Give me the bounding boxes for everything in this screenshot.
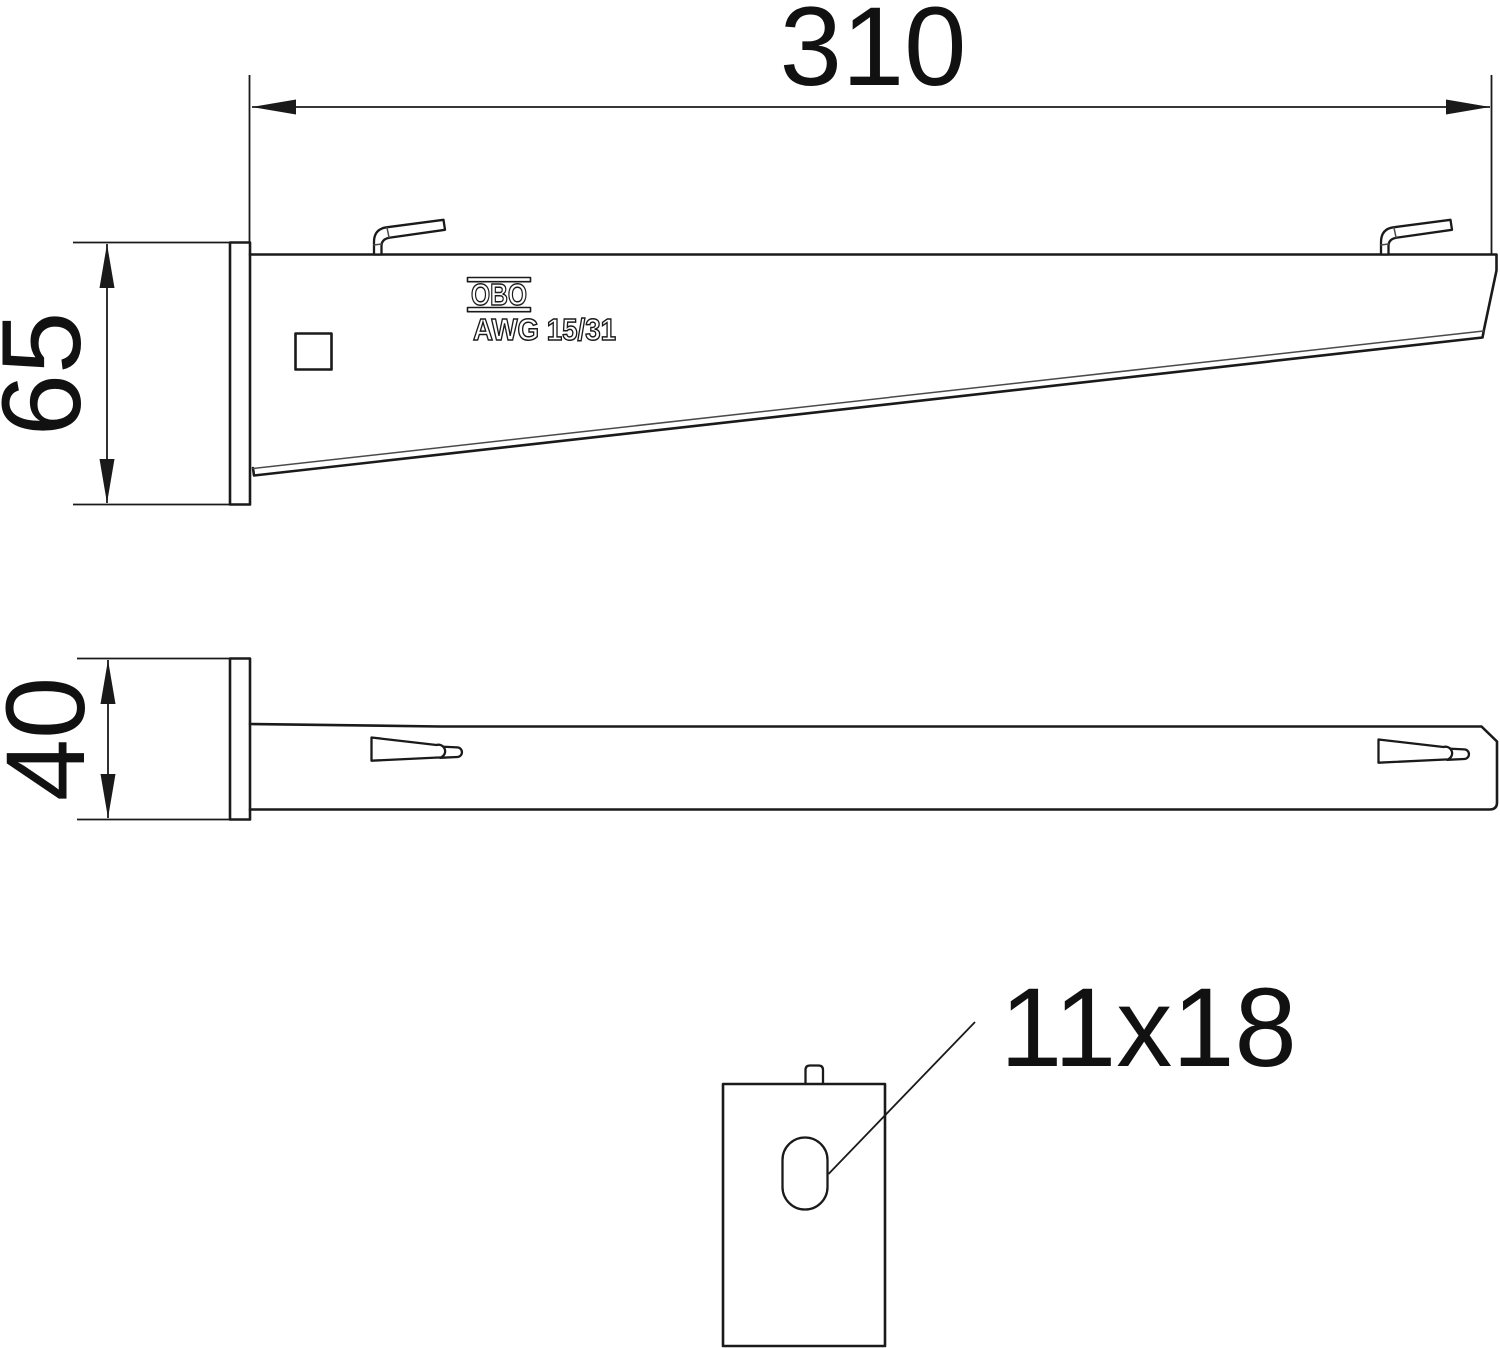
- hook-tick: [374, 244, 382, 245]
- top-view: 40: [0, 659, 1497, 820]
- leader-line: [829, 1022, 976, 1174]
- slot-body: [1379, 740, 1453, 763]
- dim-arm-length-label: 310: [780, 0, 967, 109]
- mounting-hook-rear: [1381, 220, 1452, 255]
- wall-plate-front: [723, 1084, 885, 1346]
- hook-shape: [374, 220, 445, 255]
- arm-outline: [250, 724, 1497, 810]
- arrow-down-icon: [100, 459, 115, 503]
- wall-plate-top: [230, 659, 250, 820]
- arm-outline: [250, 255, 1497, 476]
- bracket-arm-top: [250, 724, 1497, 810]
- bracket-arm-side: [250, 255, 1497, 476]
- detail-view: 11x18: [723, 965, 1297, 1346]
- side-view: 310 65: [0, 0, 1497, 505]
- dim-plate-height: 65: [0, 243, 230, 505]
- square-hole: [296, 334, 332, 370]
- dim-arm-length: 310: [250, 0, 1492, 254]
- dim-plate-height-label: 65: [0, 312, 104, 437]
- slot-size-label: 11x18: [1000, 965, 1297, 1090]
- dim-plate-width: 40: [0, 659, 230, 820]
- arm-bend-line: [253, 331, 1484, 469]
- arrow-right-icon: [1446, 100, 1490, 115]
- hook-slot-rear: [1379, 740, 1469, 763]
- branding-block: OBO AWG 15/31: [468, 277, 617, 347]
- mounting-hook-front: [374, 220, 445, 255]
- arrow-left-icon: [252, 100, 296, 115]
- dim-plate-width-label: 40: [0, 677, 108, 802]
- bracket-technical-drawing: 310 65: [0, 0, 1500, 1348]
- mounting-slot: [783, 1138, 828, 1210]
- wall-plate-side: [230, 243, 250, 505]
- hook-shape: [1381, 220, 1452, 255]
- slot-body: [372, 738, 446, 761]
- model-number-text: AWG 15/31: [473, 312, 616, 347]
- plate-tab: [806, 1066, 824, 1085]
- technical-drawing-page: 310 65: [0, 0, 1500, 1348]
- hook-tick: [1381, 244, 1389, 245]
- hook-slot-front: [372, 738, 462, 761]
- arrow-up-icon: [100, 244, 115, 288]
